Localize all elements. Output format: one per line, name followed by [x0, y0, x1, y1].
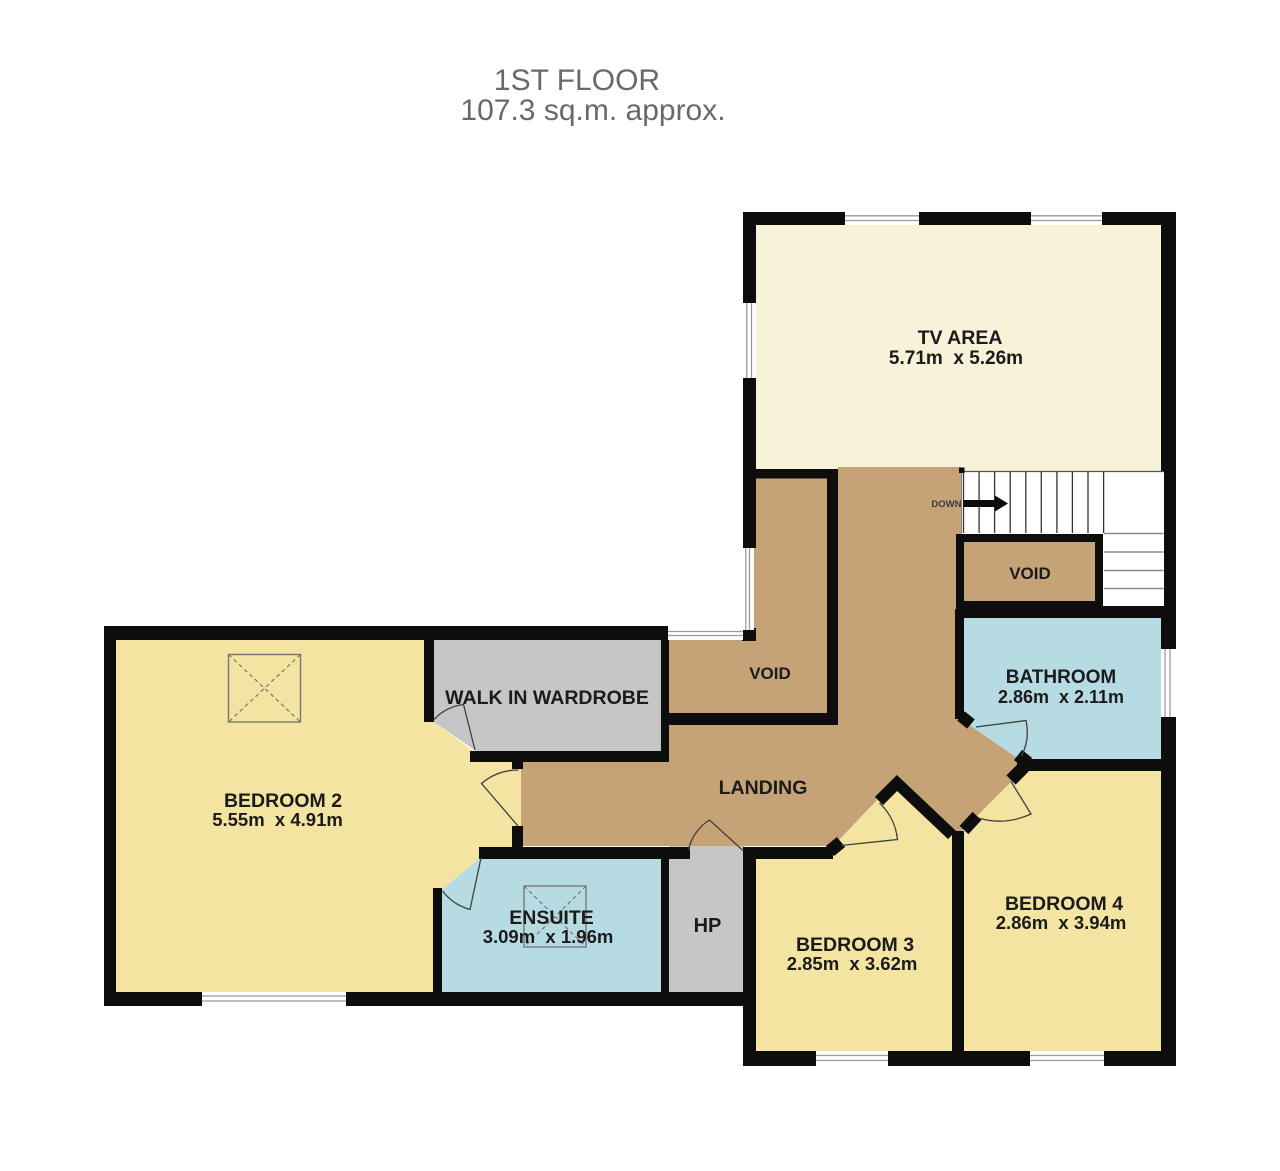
- svg-text:HP: HP: [694, 915, 722, 937]
- svg-text:2.85m x 3.62m: 2.85m x 3.62m: [787, 953, 918, 974]
- svg-text:TV AREA: TV AREA: [918, 327, 1003, 349]
- svg-text:WALK IN WARDROBE: WALK IN WARDROBE: [445, 687, 649, 709]
- svg-text:2.86m x 2.11m: 2.86m x 2.11m: [998, 687, 1124, 707]
- svg-text:2.86m x 3.94m: 2.86m x 3.94m: [996, 912, 1127, 933]
- svg-text:1ST FLOOR: 1ST FLOOR: [494, 64, 660, 97]
- svg-text:5.55m x 4.91m: 5.55m x 4.91m: [212, 809, 343, 830]
- svg-text:5.71m x 5.26m: 5.71m x 5.26m: [889, 348, 1023, 369]
- svg-text:BATHROOM: BATHROOM: [1006, 667, 1116, 688]
- svg-text:VOID: VOID: [1009, 564, 1051, 583]
- svg-text:VOID: VOID: [749, 664, 791, 683]
- svg-text:LANDING: LANDING: [719, 777, 808, 799]
- svg-text:DOWN: DOWN: [931, 499, 961, 510]
- svg-text:3.09m x 1.96m: 3.09m x 1.96m: [483, 926, 614, 947]
- svg-text:107.3 sq.m. approx.: 107.3 sq.m. approx.: [460, 94, 725, 127]
